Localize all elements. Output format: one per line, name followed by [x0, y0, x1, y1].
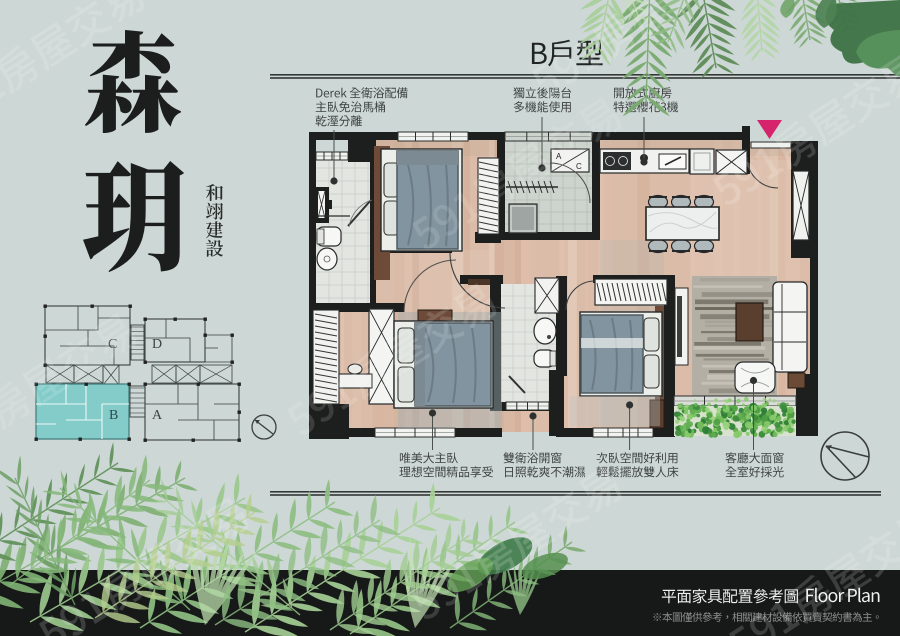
svg-text:D: D [152, 337, 162, 352]
svg-text:A: A [152, 408, 163, 423]
svg-text:A: A [556, 152, 562, 161]
svg-text:B: B [109, 408, 118, 423]
svg-text:C: C [576, 162, 582, 171]
